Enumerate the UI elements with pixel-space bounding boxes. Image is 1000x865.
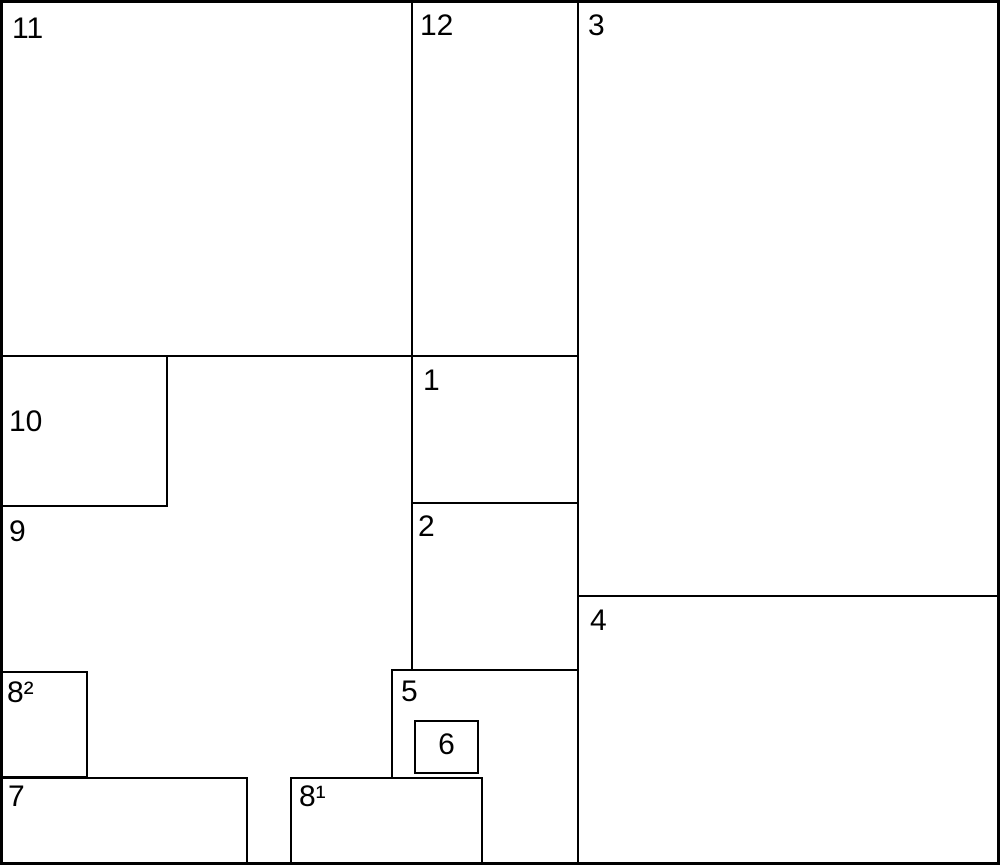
region-8-first — [290, 777, 483, 865]
region-7 — [0, 777, 248, 865]
region-10 — [0, 355, 168, 507]
region-1 — [411, 355, 579, 504]
region-3 — [577, 0, 1000, 599]
region-9-label: 9 — [9, 517, 26, 547]
region-11 — [0, 0, 413, 357]
region-12 — [411, 0, 579, 357]
region-4 — [577, 595, 1000, 865]
diagram-canvas: 11 12 3 10 1 9 2 4 8² 5 6 7 8¹ — [0, 0, 1000, 865]
region-6 — [414, 720, 479, 774]
region-2 — [411, 502, 579, 671]
region-8-second — [0, 671, 88, 778]
